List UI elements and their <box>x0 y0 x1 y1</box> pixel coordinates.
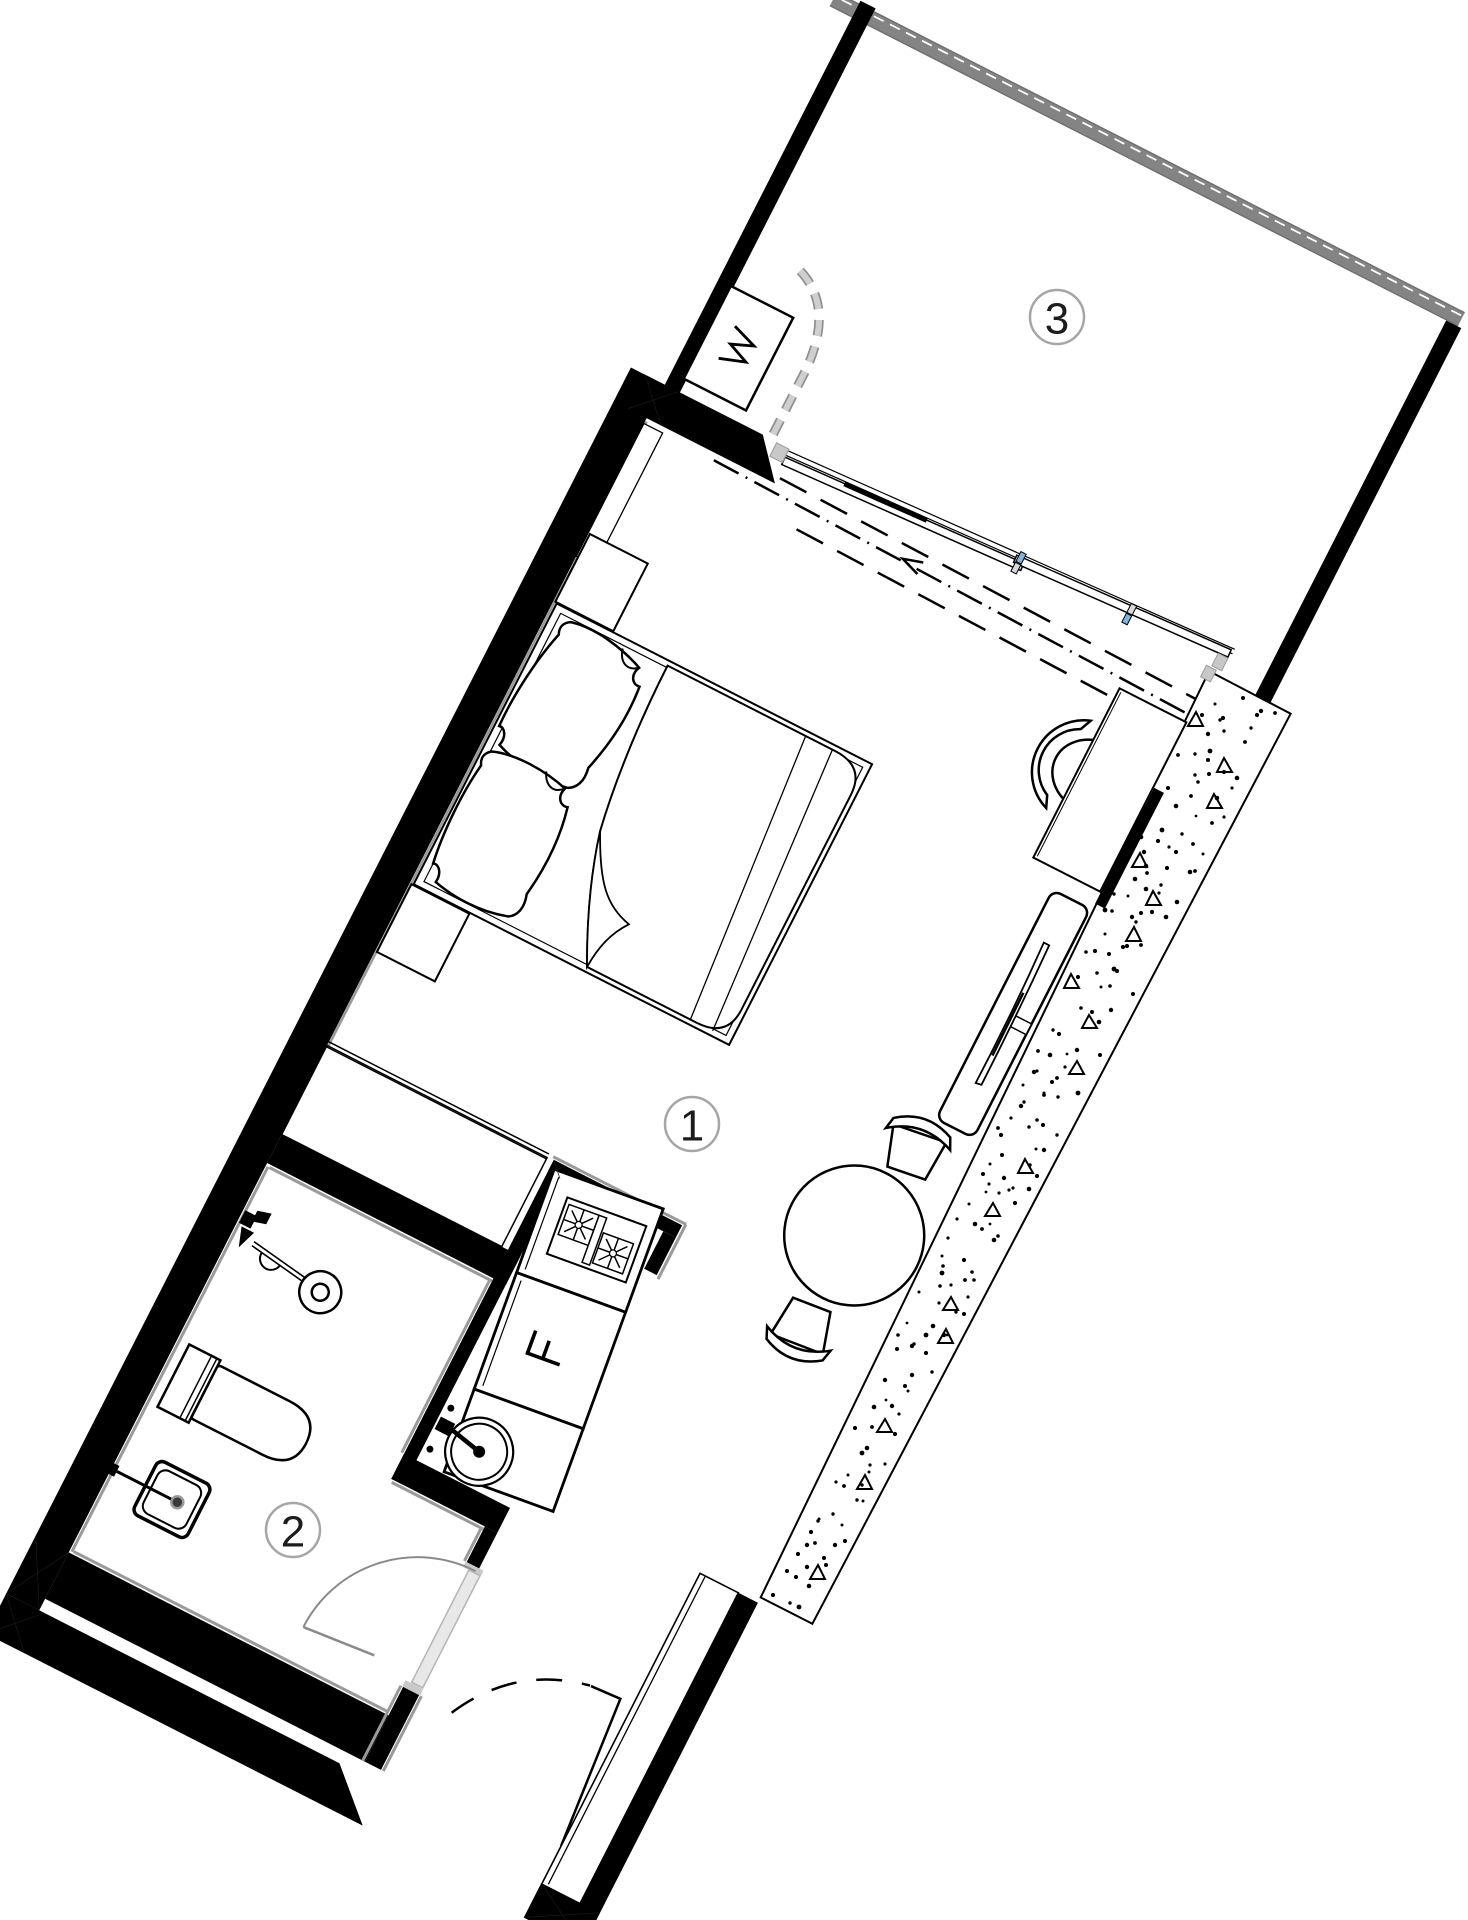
svg-text:1: 1 <box>680 1102 704 1151</box>
svg-text:3: 3 <box>1045 295 1069 344</box>
svg-text:2: 2 <box>281 1508 305 1557</box>
